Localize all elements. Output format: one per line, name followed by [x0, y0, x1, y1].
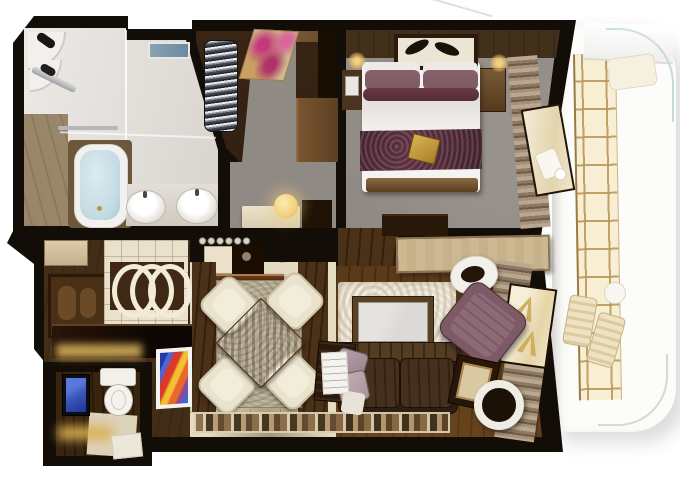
toilet-bowl: [104, 384, 133, 416]
wall-sconce: [348, 52, 366, 70]
sphere-lamp: [274, 194, 298, 218]
cup-row: [198, 236, 251, 246]
foot-of-bed-dresser: [382, 214, 448, 236]
shower-glass-partition: [125, 30, 127, 142]
art-panel-motif: [58, 286, 76, 320]
towel-bar: [58, 126, 118, 130]
wc-tv: [62, 374, 90, 416]
tan-cabinet: [44, 240, 88, 266]
bed-pillow-mauve: [423, 70, 478, 90]
bathtub-drain: [97, 206, 102, 211]
mosaic-runner-rug: [194, 412, 450, 433]
round-tray-table: [474, 380, 524, 430]
espresso-dial: [242, 252, 251, 261]
wc-door: [111, 432, 143, 459]
living-tv-screen: [358, 302, 428, 342]
wc-floor-glow: [58, 426, 112, 440]
sofa-pillow: [340, 390, 365, 415]
window-view-table: [553, 167, 567, 181]
bar-underglow: [56, 344, 142, 358]
sofa-seat-cushion: [400, 358, 454, 408]
art-panel-motif: [80, 288, 96, 318]
bed-bolster: [363, 88, 479, 101]
bathroom-skylight: [148, 42, 190, 59]
bedside-phone: [345, 76, 359, 96]
floorplan-image: [0, 0, 680, 486]
lattice-ring: [148, 264, 192, 318]
background-sketch-line: [400, 0, 493, 17]
balcony-lounger: [606, 53, 658, 91]
bed-pillow-mauve: [365, 70, 420, 90]
faucet: [143, 191, 147, 198]
corridor-cabinet: [302, 200, 332, 228]
abstract-artwork: [160, 351, 188, 405]
bed-footboard: [366, 178, 478, 192]
faucet: [195, 189, 199, 196]
wardrobe-cabinet: [296, 98, 338, 162]
balcony-deck-table: [604, 282, 626, 304]
wall-sconce: [490, 54, 508, 72]
magazine: [321, 351, 349, 394]
clothes-rack: [204, 40, 238, 132]
